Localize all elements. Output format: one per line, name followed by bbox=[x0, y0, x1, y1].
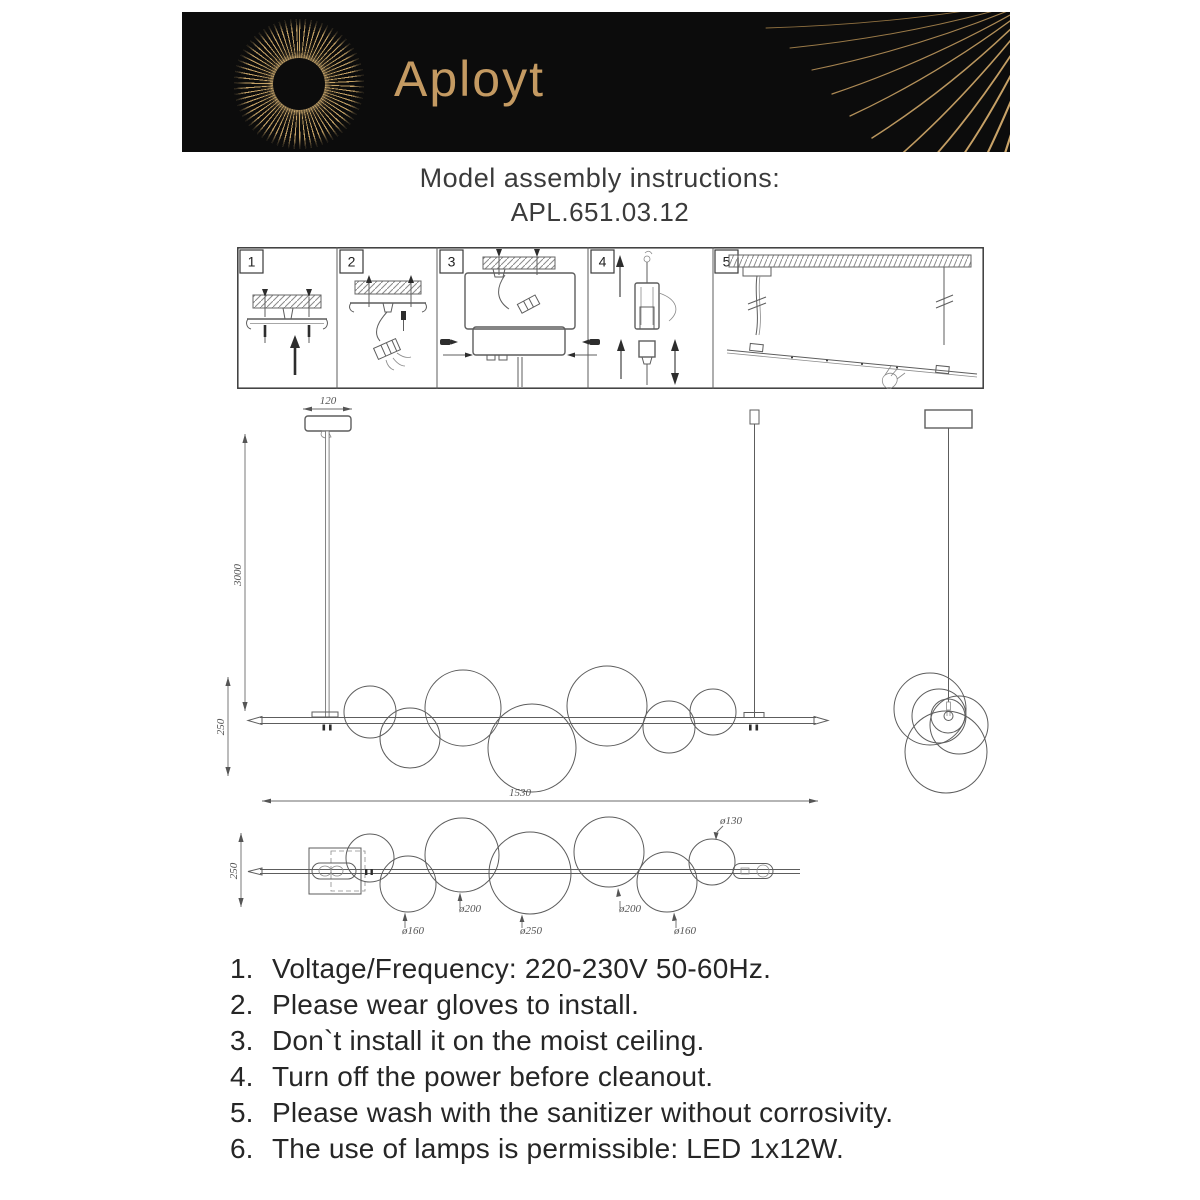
canopy-plan bbox=[309, 848, 373, 894]
ceiling-canopy bbox=[305, 416, 351, 431]
instruction-sheet: Aployt Model assembly instructions: APL.… bbox=[0, 0, 1200, 1200]
glass-sphere bbox=[643, 701, 695, 753]
dia-label-200-left: ø200 bbox=[458, 903, 482, 915]
item-text: Don`t install it on the moist ceiling. bbox=[272, 1023, 1000, 1059]
dia-label-130: ø130 bbox=[719, 815, 743, 827]
item-text: Please wear gloves to install. bbox=[272, 987, 1000, 1023]
assembly-steps-strip: 1 2 bbox=[237, 247, 984, 389]
brand-wordmark: Aployt bbox=[394, 50, 545, 108]
dia-label-160-left: ø160 bbox=[401, 925, 425, 937]
step-number: 4 bbox=[599, 254, 607, 270]
ceiling-band bbox=[729, 255, 971, 267]
end-fitting bbox=[733, 864, 773, 879]
front-view: 120 3000 250 bbox=[215, 395, 828, 803]
glass-sphere bbox=[574, 817, 644, 887]
lamp-bar bbox=[248, 712, 828, 731]
glass-sphere bbox=[689, 839, 735, 885]
rays-decoration-icon bbox=[738, 12, 1010, 152]
rod-top-fitting bbox=[750, 410, 759, 424]
instruction-item: 3. Don`t install it on the moist ceiling… bbox=[230, 1023, 1000, 1059]
dia-label-200-right: ø200 bbox=[618, 903, 642, 915]
sunburst-logo-icon bbox=[234, 19, 364, 149]
instruction-item: 4. Turn off the power before cleanout. bbox=[230, 1059, 1000, 1095]
glass-sphere bbox=[344, 686, 396, 738]
glass-sphere bbox=[912, 689, 966, 743]
glass-sphere bbox=[380, 856, 436, 912]
item-text: Turn off the power before cleanout. bbox=[272, 1059, 1000, 1095]
glass-sphere bbox=[637, 852, 697, 912]
instruction-list: 1. Voltage/Frequency: 220-230V 50-60Hz. … bbox=[230, 951, 1000, 1167]
brand-header: Aployt bbox=[182, 12, 1010, 152]
item-text: Voltage/Frequency: 220-230V 50-60Hz. bbox=[272, 951, 1000, 987]
ceiling-band bbox=[253, 295, 321, 308]
glass-sphere bbox=[931, 699, 965, 733]
ceiling-band bbox=[483, 257, 555, 269]
step-number: 1 bbox=[248, 254, 256, 270]
ceiling-canopy bbox=[925, 410, 972, 428]
glass-sphere bbox=[690, 689, 736, 735]
item-number: 5. bbox=[230, 1095, 272, 1131]
item-number: 4. bbox=[230, 1059, 272, 1095]
item-text: Please wash with the sanitizer without c… bbox=[272, 1095, 1000, 1131]
dim-canopy-width: 120 bbox=[320, 395, 337, 407]
dim-total-length: 1530 bbox=[509, 787, 532, 799]
glass-sphere bbox=[930, 696, 988, 754]
item-number: 2. bbox=[230, 987, 272, 1023]
dim-suspension-height: 3000 bbox=[232, 564, 244, 588]
glass-sphere bbox=[567, 666, 647, 746]
instruction-item: 5. Please wash with the sanitizer withou… bbox=[230, 1095, 1000, 1131]
instruction-item: 6. The use of lamps is permissible: LED … bbox=[230, 1131, 1000, 1167]
instruction-item: 2. Please wear gloves to install. bbox=[230, 987, 1000, 1023]
glass-sphere bbox=[894, 673, 966, 745]
dimension-drawing: 120 3000 250 bbox=[210, 390, 1045, 945]
item-number: 3. bbox=[230, 1023, 272, 1059]
top-view: 250 bbox=[228, 815, 800, 937]
glass-sphere bbox=[346, 834, 394, 882]
side-view bbox=[894, 410, 988, 793]
bulb-icon bbox=[944, 712, 953, 721]
step-number: 3 bbox=[448, 254, 456, 270]
glass-sphere bbox=[425, 818, 499, 892]
dia-label-160-right: ø160 bbox=[673, 925, 697, 937]
step-number: 2 bbox=[348, 254, 356, 270]
diameter-labels: ø160 ø200 ø250 ø200 ø160 ø130 bbox=[401, 815, 743, 937]
item-text: The use of lamps is permissible: LED 1x1… bbox=[272, 1131, 1000, 1167]
dim-fixture-height: 250 bbox=[215, 718, 227, 735]
page-title: Model assembly instructions: bbox=[0, 163, 1200, 194]
glass-sphere bbox=[905, 711, 987, 793]
title-block: Model assembly instructions: APL.651.03.… bbox=[0, 163, 1200, 228]
suspension-rod-left bbox=[326, 431, 330, 717]
dim-fixture-depth: 250 bbox=[228, 862, 240, 879]
dia-label-250: ø250 bbox=[519, 925, 543, 937]
item-number: 1. bbox=[230, 951, 272, 987]
item-number: 6. bbox=[230, 1131, 272, 1167]
instruction-item: 1. Voltage/Frequency: 220-230V 50-60Hz. bbox=[230, 951, 1000, 987]
model-number: APL.651.03.12 bbox=[0, 197, 1200, 228]
